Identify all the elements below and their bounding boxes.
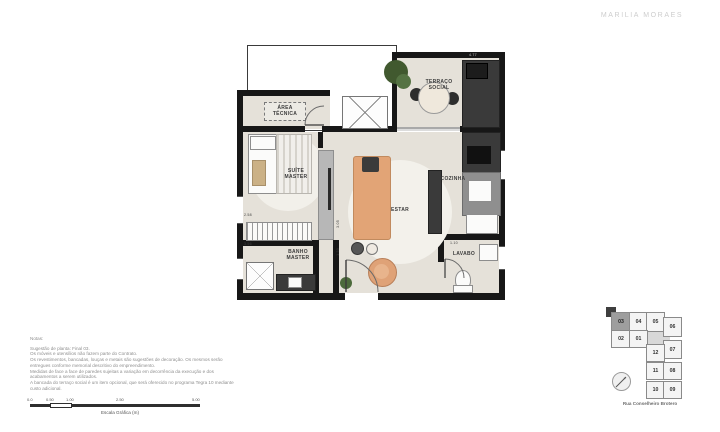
scale-seg-1 [30,404,50,407]
unit-09: 09 [663,381,682,399]
window-left-banho [237,258,243,280]
wall-top [392,52,505,58]
dim-lavabo: 1.10 [450,241,458,245]
unit-02: 02 [611,330,631,348]
north-arrow-icon [611,371,632,392]
room-label-estar: ESTAR [386,207,414,213]
shaft-x-icon [342,96,388,129]
room-label-lavabo: LAVABO [448,251,480,257]
floorplan-sheet: MARILIA MORAES ÁREA TÉCNICA TERRAÇO SOCI… [0,0,720,432]
terraco-sliding-door-track [397,129,460,131]
bed-bench-icon [252,160,266,186]
lavabo-door-swing-icon [444,258,465,279]
tv-icon [328,168,331,210]
sofa-cushion-icon [362,157,379,172]
dim-estar-1: 3.05 [336,220,340,228]
notes-block: Notas: Sugestão de planta: Final 03. Os … [30,336,255,391]
toilet-tank-icon [453,285,473,293]
tv-panel-icon [318,150,334,240]
dim-estar-2: 1.30 [336,248,340,256]
shower-icon [246,262,274,290]
banho-basin-icon [288,277,302,288]
street-label: Rua Conselheiro Brotero [600,401,700,406]
unit-07: 07 [663,340,682,359]
kitchen-sink-icon [468,180,492,202]
plant-leaf-icon [396,74,411,89]
lavabo-basin-icon [479,244,498,261]
window-left-suite [237,196,243,224]
scale-seg-2 [50,403,72,408]
room-label-suite: SUÍTE MASTER [276,168,316,181]
wall-lavabo-top [440,234,505,240]
brand-logo: MARILIA MORAES [597,12,687,19]
fridge-icon [466,214,498,234]
notes-line: custo adicional. [30,386,255,392]
unit-12: 12 [646,344,665,362]
scale-tick: 2.50 [116,397,124,402]
coffee-table-dark-icon [351,242,364,255]
notes-line: Os revestimentos, bancadas, louças e met… [30,357,255,363]
wardrobe-hangers-icon [246,222,312,241]
bed-pillow-icon [250,136,276,150]
unit-03: 03 [611,312,631,332]
room-label-banho: BANHO MASTER [282,249,314,262]
bed-duvet-icon [276,134,312,194]
dim-top-right: 4.77 [469,53,477,57]
dim-suite: 2.58 [244,213,252,217]
scale-seg-3 [71,404,200,407]
area-tecnica-door-swing-icon [304,105,325,126]
wall-area-tecnica-top [237,90,330,96]
scale-caption: Escala Gráfica (m) [60,410,180,415]
dim-banho: 3.56 [244,242,252,246]
wall-bottom-right [378,293,505,300]
unit-08: 08 [663,362,682,380]
room-label-terraco: TERRAÇO SOCIAL [418,79,460,92]
notes-title: Notas: [30,336,255,342]
window-right-lavabo [499,246,505,270]
coffee-table-light-icon [366,243,378,255]
wall-bottom-left [237,293,345,300]
notes-line: A bancada do terraço social é um item op… [30,380,255,386]
unit-06: 06 [663,317,682,337]
room-label-area-tecnica: ÁREA TÉCNICA [264,102,306,121]
scale-tick: 0.0 [27,397,33,402]
terraco-appliance-icon [466,63,488,79]
room-label-cozinha: COZINHA [440,176,466,182]
scale-tick: 5.00 [192,397,200,402]
wall-suite-stub [318,132,323,148]
entry-door-swing-icon [345,259,379,293]
scale-tick: 1.00 [66,397,74,402]
scale-tick: 0.50 [46,397,54,402]
cooktop-icon [467,146,491,164]
wall-mid-a [237,126,305,132]
